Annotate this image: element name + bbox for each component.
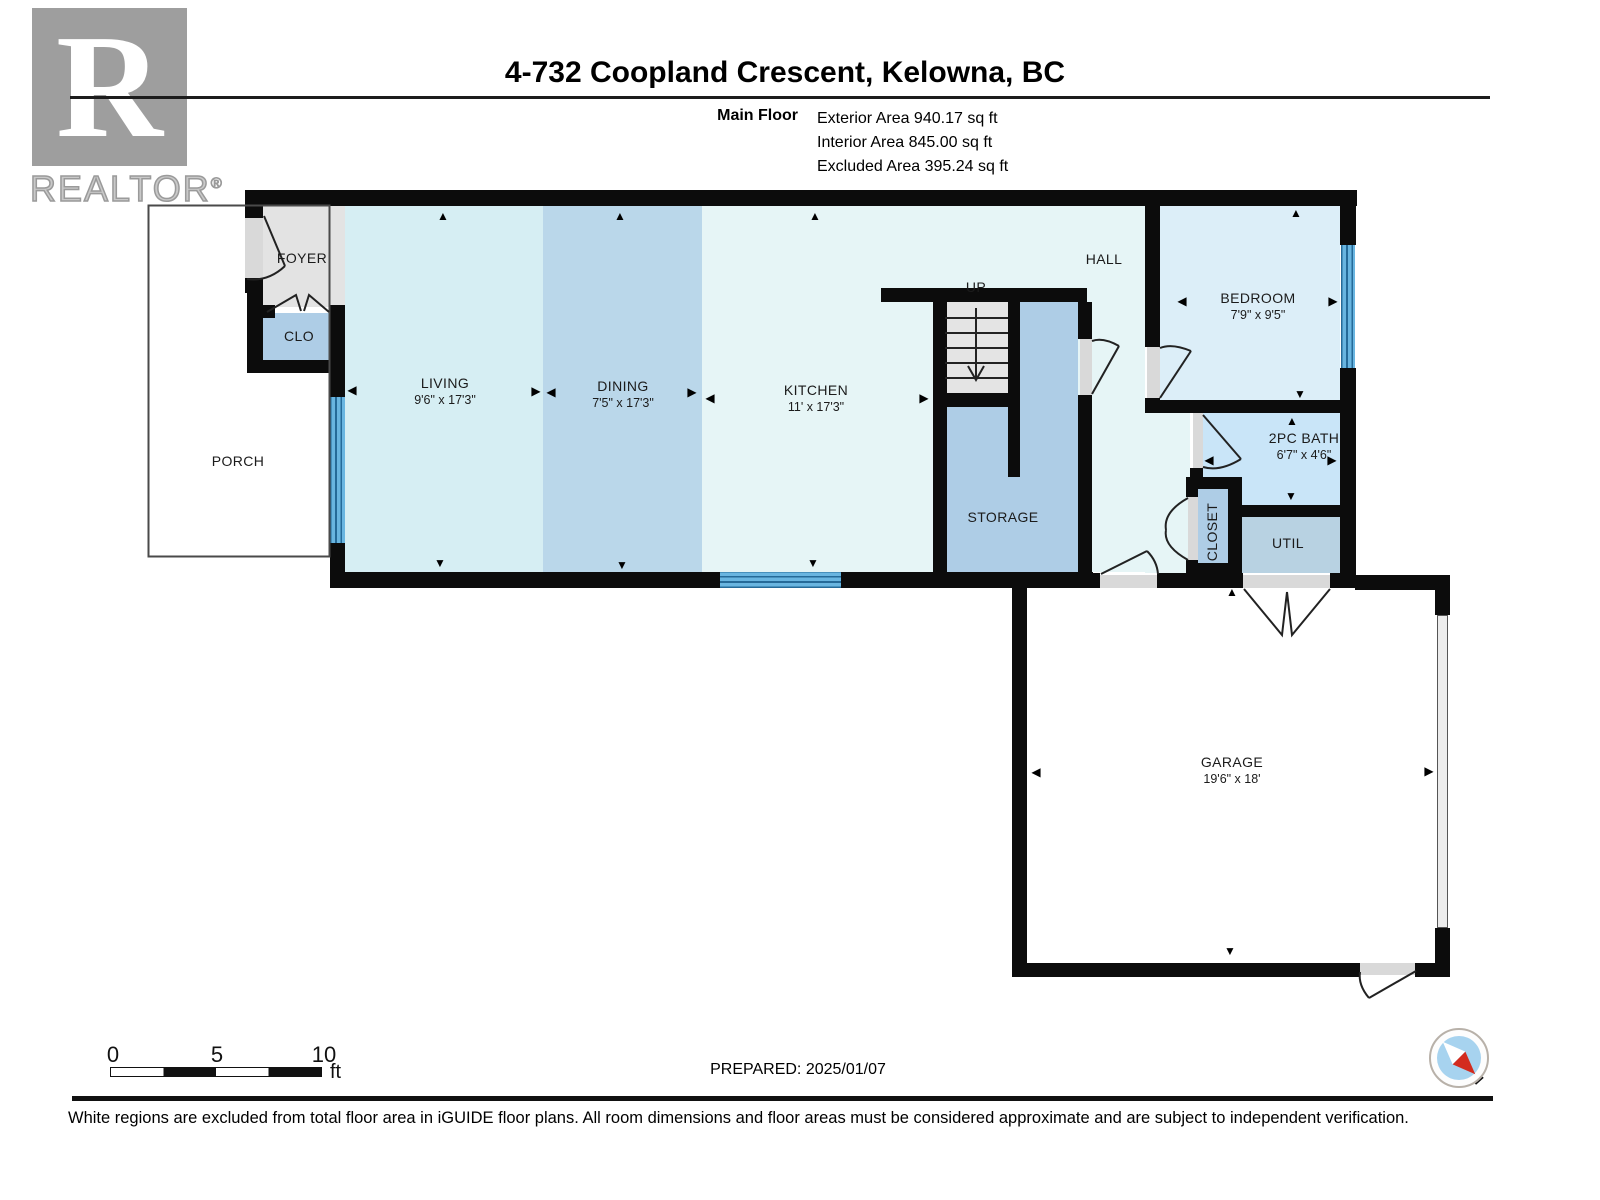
dim-arrow-up-icon: ▲	[1286, 415, 1298, 427]
room-dimensions: 7'5" x 17'3"	[592, 396, 654, 410]
room-name: KITCHEN	[784, 382, 848, 398]
room-name: 2PC BATH	[1269, 430, 1340, 446]
room-name: HALL	[1086, 251, 1123, 267]
plan-linework	[0, 0, 1600, 1200]
dim-arrow-left-icon: ◀	[347, 384, 356, 396]
dim-arrow-down-icon: ▼	[616, 559, 628, 571]
room-label-foyer: FOYER	[277, 250, 327, 266]
room-dimensions: 9'6" x 17'3"	[414, 393, 476, 407]
foyer-door-arc	[247, 266, 285, 279]
room-name: UTIL	[1272, 535, 1304, 551]
room-dimensions: 7'9" x 9'5"	[1220, 308, 1295, 322]
room-label-closet: CLOSET	[1204, 503, 1220, 561]
room-name: CLO	[284, 328, 314, 344]
room-dimensions: 11' x 17'3"	[784, 400, 848, 414]
dim-arrow-down-icon: ▼	[434, 557, 446, 569]
storage-door-leaf	[1092, 346, 1119, 394]
dim-arrow-up-icon: ▲	[1290, 207, 1302, 219]
room-label-storage: STORAGE	[967, 509, 1038, 525]
dim-arrow-left-icon: ◀	[1031, 766, 1040, 778]
dim-arrow-left-icon: ◀	[1177, 295, 1186, 307]
garage-exit-door-arc	[1360, 972, 1369, 998]
dim-arrow-down-icon: ▼	[1285, 490, 1297, 502]
room-name: PORCH	[212, 453, 265, 469]
room-name: GARAGE	[1201, 754, 1263, 770]
dim-arrow-up-icon: ▲	[437, 210, 449, 222]
dim-arrow-left-icon: ◀	[1204, 454, 1213, 466]
room-dimensions: 6'7" x 4'6"	[1269, 448, 1340, 462]
util-garage-double-door	[1244, 589, 1330, 635]
room-label-living: LIVING9'6" x 17'3"	[414, 375, 476, 407]
room-name: UP	[966, 279, 986, 295]
room-name: DINING	[592, 378, 654, 394]
dim-arrow-right-icon: ▶	[1424, 765, 1433, 777]
room-label-hall: HALL	[1086, 251, 1123, 267]
room-name: BEDROOM	[1220, 290, 1295, 306]
dim-arrow-left-icon: ◀	[546, 386, 555, 398]
dim-arrow-down-icon: ▼	[1294, 388, 1306, 400]
room-label-kitchen: KITCHEN11' x 17'3"	[784, 382, 848, 414]
room-label-bedroom: BEDROOM7'9" x 9'5"	[1220, 290, 1295, 322]
bedroom-door-leaf	[1160, 351, 1191, 398]
room-name: LIVING	[414, 375, 476, 391]
bedroom-door-arc	[1160, 346, 1191, 351]
dim-arrow-left-icon: ◀	[705, 392, 714, 404]
storage-door-arc	[1092, 340, 1119, 346]
room-label-garage: GARAGE19'6" x 18'	[1201, 754, 1263, 786]
clo-bifold-door	[267, 295, 329, 312]
room-name: STORAGE	[967, 509, 1038, 525]
room-label-porch: PORCH	[212, 453, 265, 469]
dim-arrow-right-icon: ▶	[531, 385, 540, 397]
dim-arrow-up-icon: ▲	[809, 210, 821, 222]
dim-arrow-right-icon: ▶	[687, 386, 696, 398]
room-label-util: UTIL	[1272, 535, 1304, 551]
dim-arrow-down-icon: ▼	[1224, 945, 1236, 957]
closet-door-arcs	[1166, 498, 1188, 560]
room-label-stairs-up: UP	[966, 279, 986, 295]
dim-arrow-down-icon: ▼	[807, 557, 819, 569]
room-name: CLOSET	[1204, 503, 1220, 561]
dim-arrow-up-icon: ▲	[614, 210, 626, 222]
room-label-bath: 2PC BATH6'7" x 4'6"	[1269, 430, 1340, 462]
room-label-clo: CLO	[284, 328, 314, 344]
room-name: FOYER	[277, 250, 327, 266]
dim-arrow-up-icon: ▲	[1226, 586, 1238, 598]
hall-garage-door-leaf	[1101, 551, 1147, 574]
floorplan-page: R REALTOR® 4-732 Coopland Crescent, Kelo…	[0, 0, 1600, 1200]
dim-arrow-right-icon: ▶	[919, 392, 928, 404]
hall-garage-door-arc	[1147, 551, 1158, 574]
room-label-dining: DINING7'5" x 17'3"	[592, 378, 654, 410]
garage-exit-door-leaf	[1369, 971, 1416, 998]
dim-arrow-right-icon: ▶	[1328, 295, 1337, 307]
room-dimensions: 19'6" x 18'	[1201, 772, 1263, 786]
